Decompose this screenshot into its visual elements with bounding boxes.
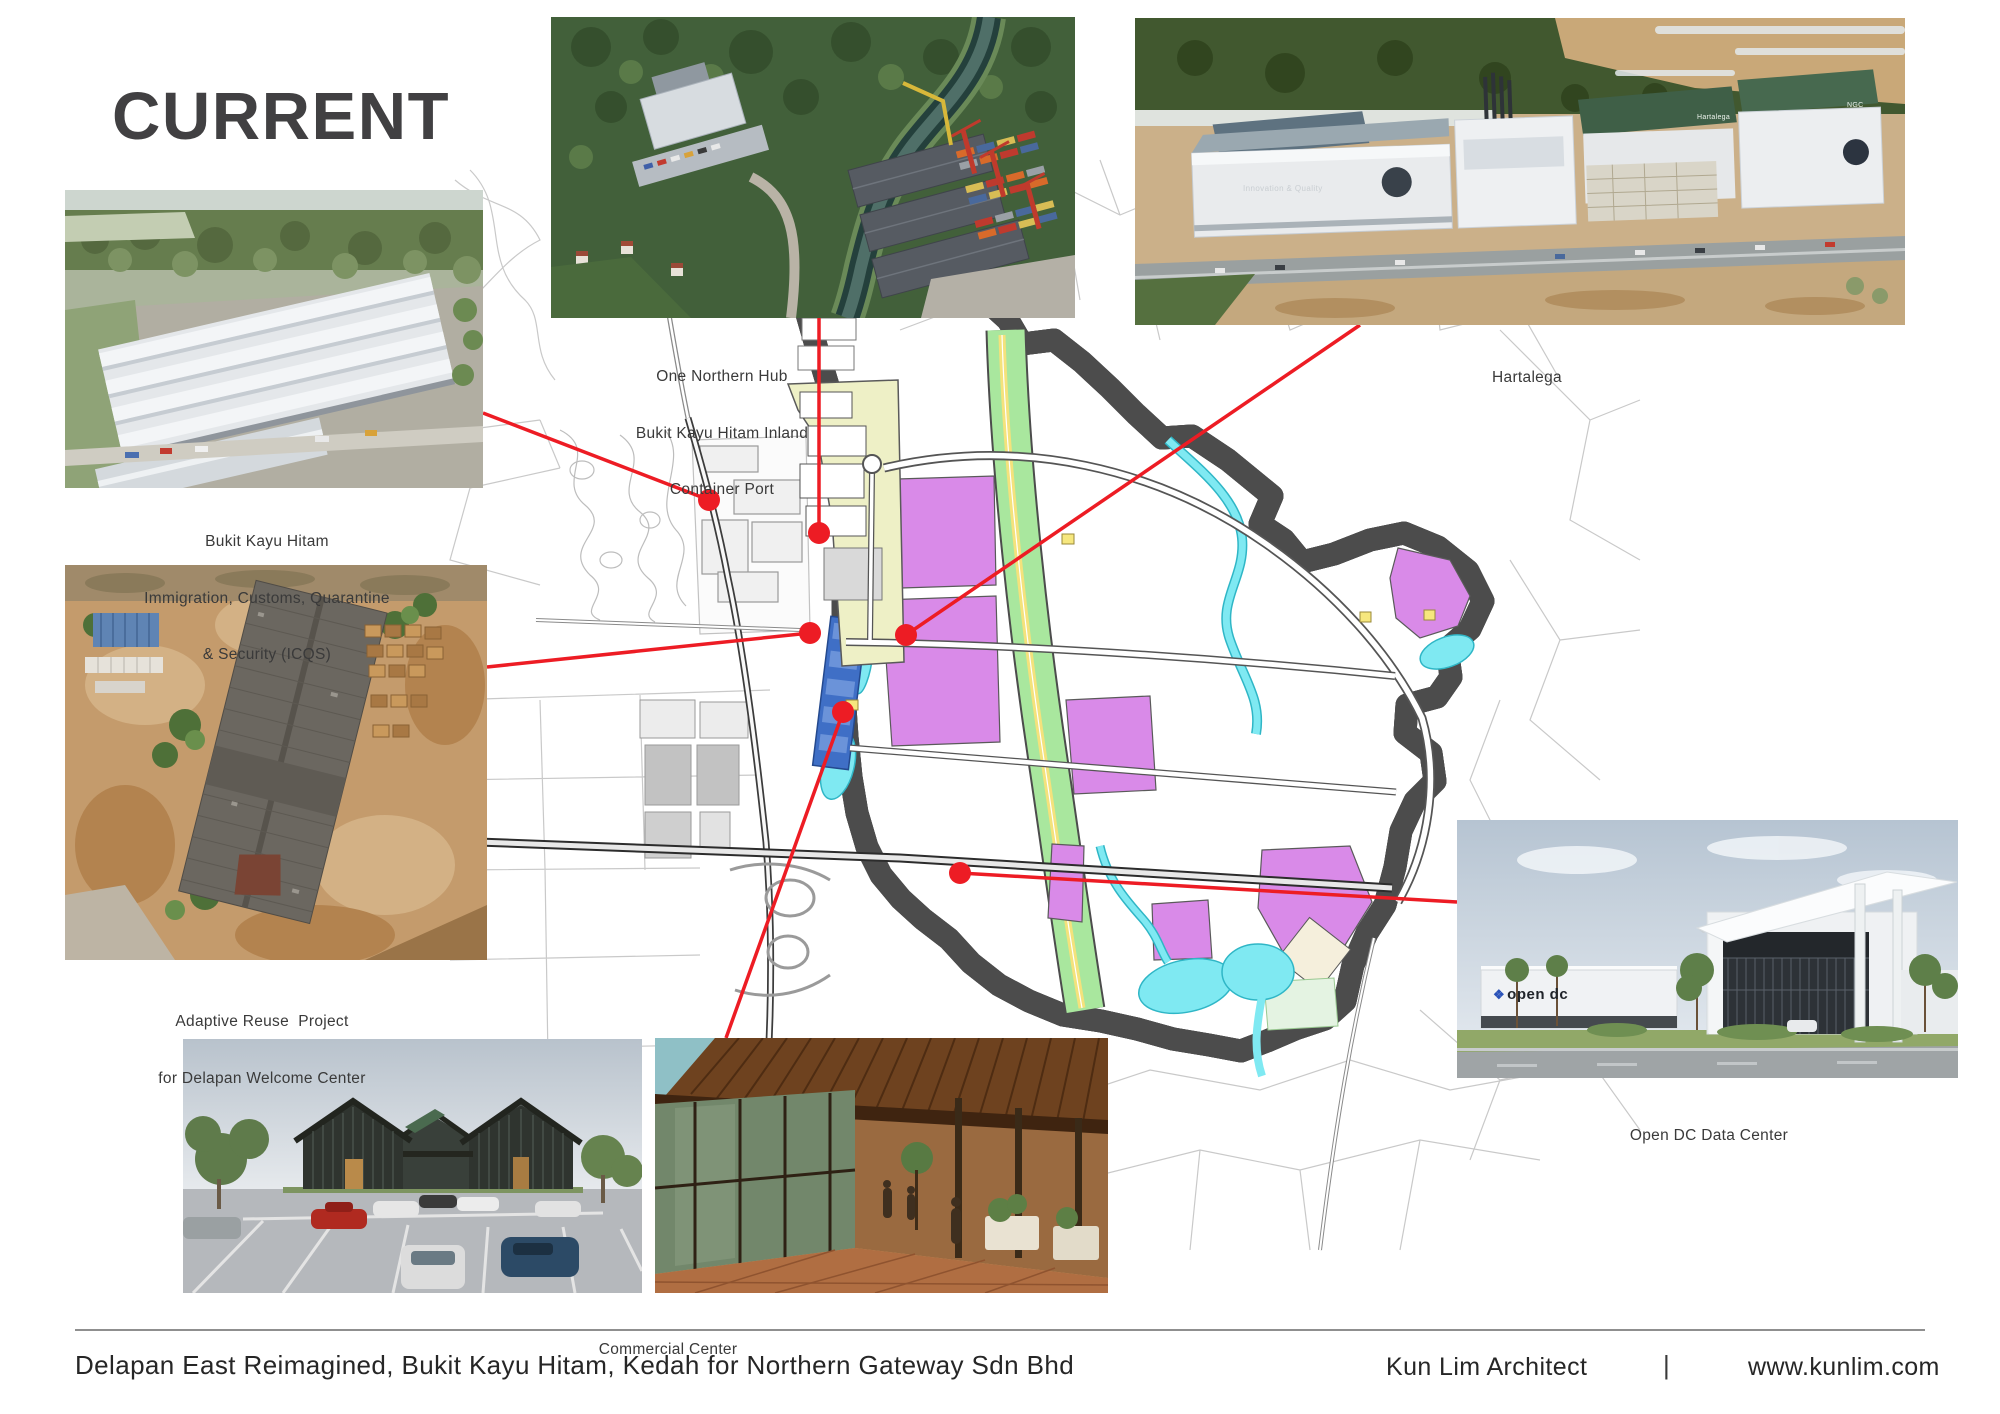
caption-hartalega: Hartalega	[1492, 331, 1562, 426]
caption-line: Bukit Kayu Hitam Inland	[636, 425, 808, 444]
caption-line: Bukit Kayu Hitam	[144, 533, 390, 552]
presentation-board: CURRENT	[0, 0, 2000, 1414]
caption-line: One Northern Hub	[636, 368, 808, 387]
connector-open-dc	[960, 873, 1457, 902]
hartalega-facade-text: Innovation & Quality	[1243, 184, 1323, 193]
footer-architect: Kun Lim Architect	[1386, 1353, 1587, 1382]
open-dc-logo: ❖open dc	[1493, 986, 1568, 1003]
photo-container-port	[551, 17, 1075, 318]
map-marker-container-port	[808, 522, 830, 544]
photo-hartalega: Innovation & Quality Hartalega NGC	[1135, 18, 1905, 325]
hartalega-ngc-sign: NGC	[1847, 102, 1863, 109]
caption-line: Container Port	[636, 481, 808, 500]
caption-line: & Security (ICQS)	[144, 646, 390, 665]
map-marker-welcome-center	[799, 622, 821, 644]
caption-line: Hartalega	[1492, 369, 1562, 388]
map-marker-hartalega	[895, 624, 917, 646]
footer-website: www.kunlim.com	[1748, 1353, 1940, 1382]
footer-project-title: Delapan East Reimagined, Bukit Kayu Hita…	[75, 1350, 1074, 1381]
caption-adaptive-reuse: Adaptive Reuse Project for Delapan Welco…	[158, 975, 365, 1126]
hartalega-roof-sign: Hartalega	[1697, 114, 1730, 121]
map-marker-open-dc	[949, 862, 971, 884]
map-marker-commercial	[832, 701, 854, 723]
caption-container-port: One Northern Hub Bukit Kayu Hitam Inland…	[636, 330, 808, 538]
footer-divider	[75, 1329, 1925, 1331]
photo-icqs	[65, 190, 483, 488]
open-dc-logo-icon: ❖	[1493, 987, 1505, 1002]
caption-line: Immigration, Customs, Quarantine	[144, 590, 390, 609]
photo-commercial-interior	[655, 1038, 1108, 1293]
page-title: CURRENT	[112, 78, 450, 155]
caption-line: for Delapan Welcome Center	[158, 1070, 365, 1089]
caption-icqs: Bukit Kayu Hitam Immigration, Customs, Q…	[144, 495, 390, 703]
caption-line: Open DC Data Center	[1630, 1127, 1788, 1146]
connector-welcome-center	[487, 633, 810, 667]
open-dc-logo-text: open dc	[1507, 986, 1568, 1003]
connector-hartalega	[906, 325, 1360, 635]
caption-open-dc: Open DC Data Center	[1630, 1089, 1788, 1184]
footer-separator: |	[1663, 1350, 1670, 1381]
photo-open-dc: ❖open dc	[1457, 820, 1958, 1078]
caption-line: Adaptive Reuse Project	[158, 1013, 365, 1032]
connector-commercial	[726, 712, 843, 1038]
